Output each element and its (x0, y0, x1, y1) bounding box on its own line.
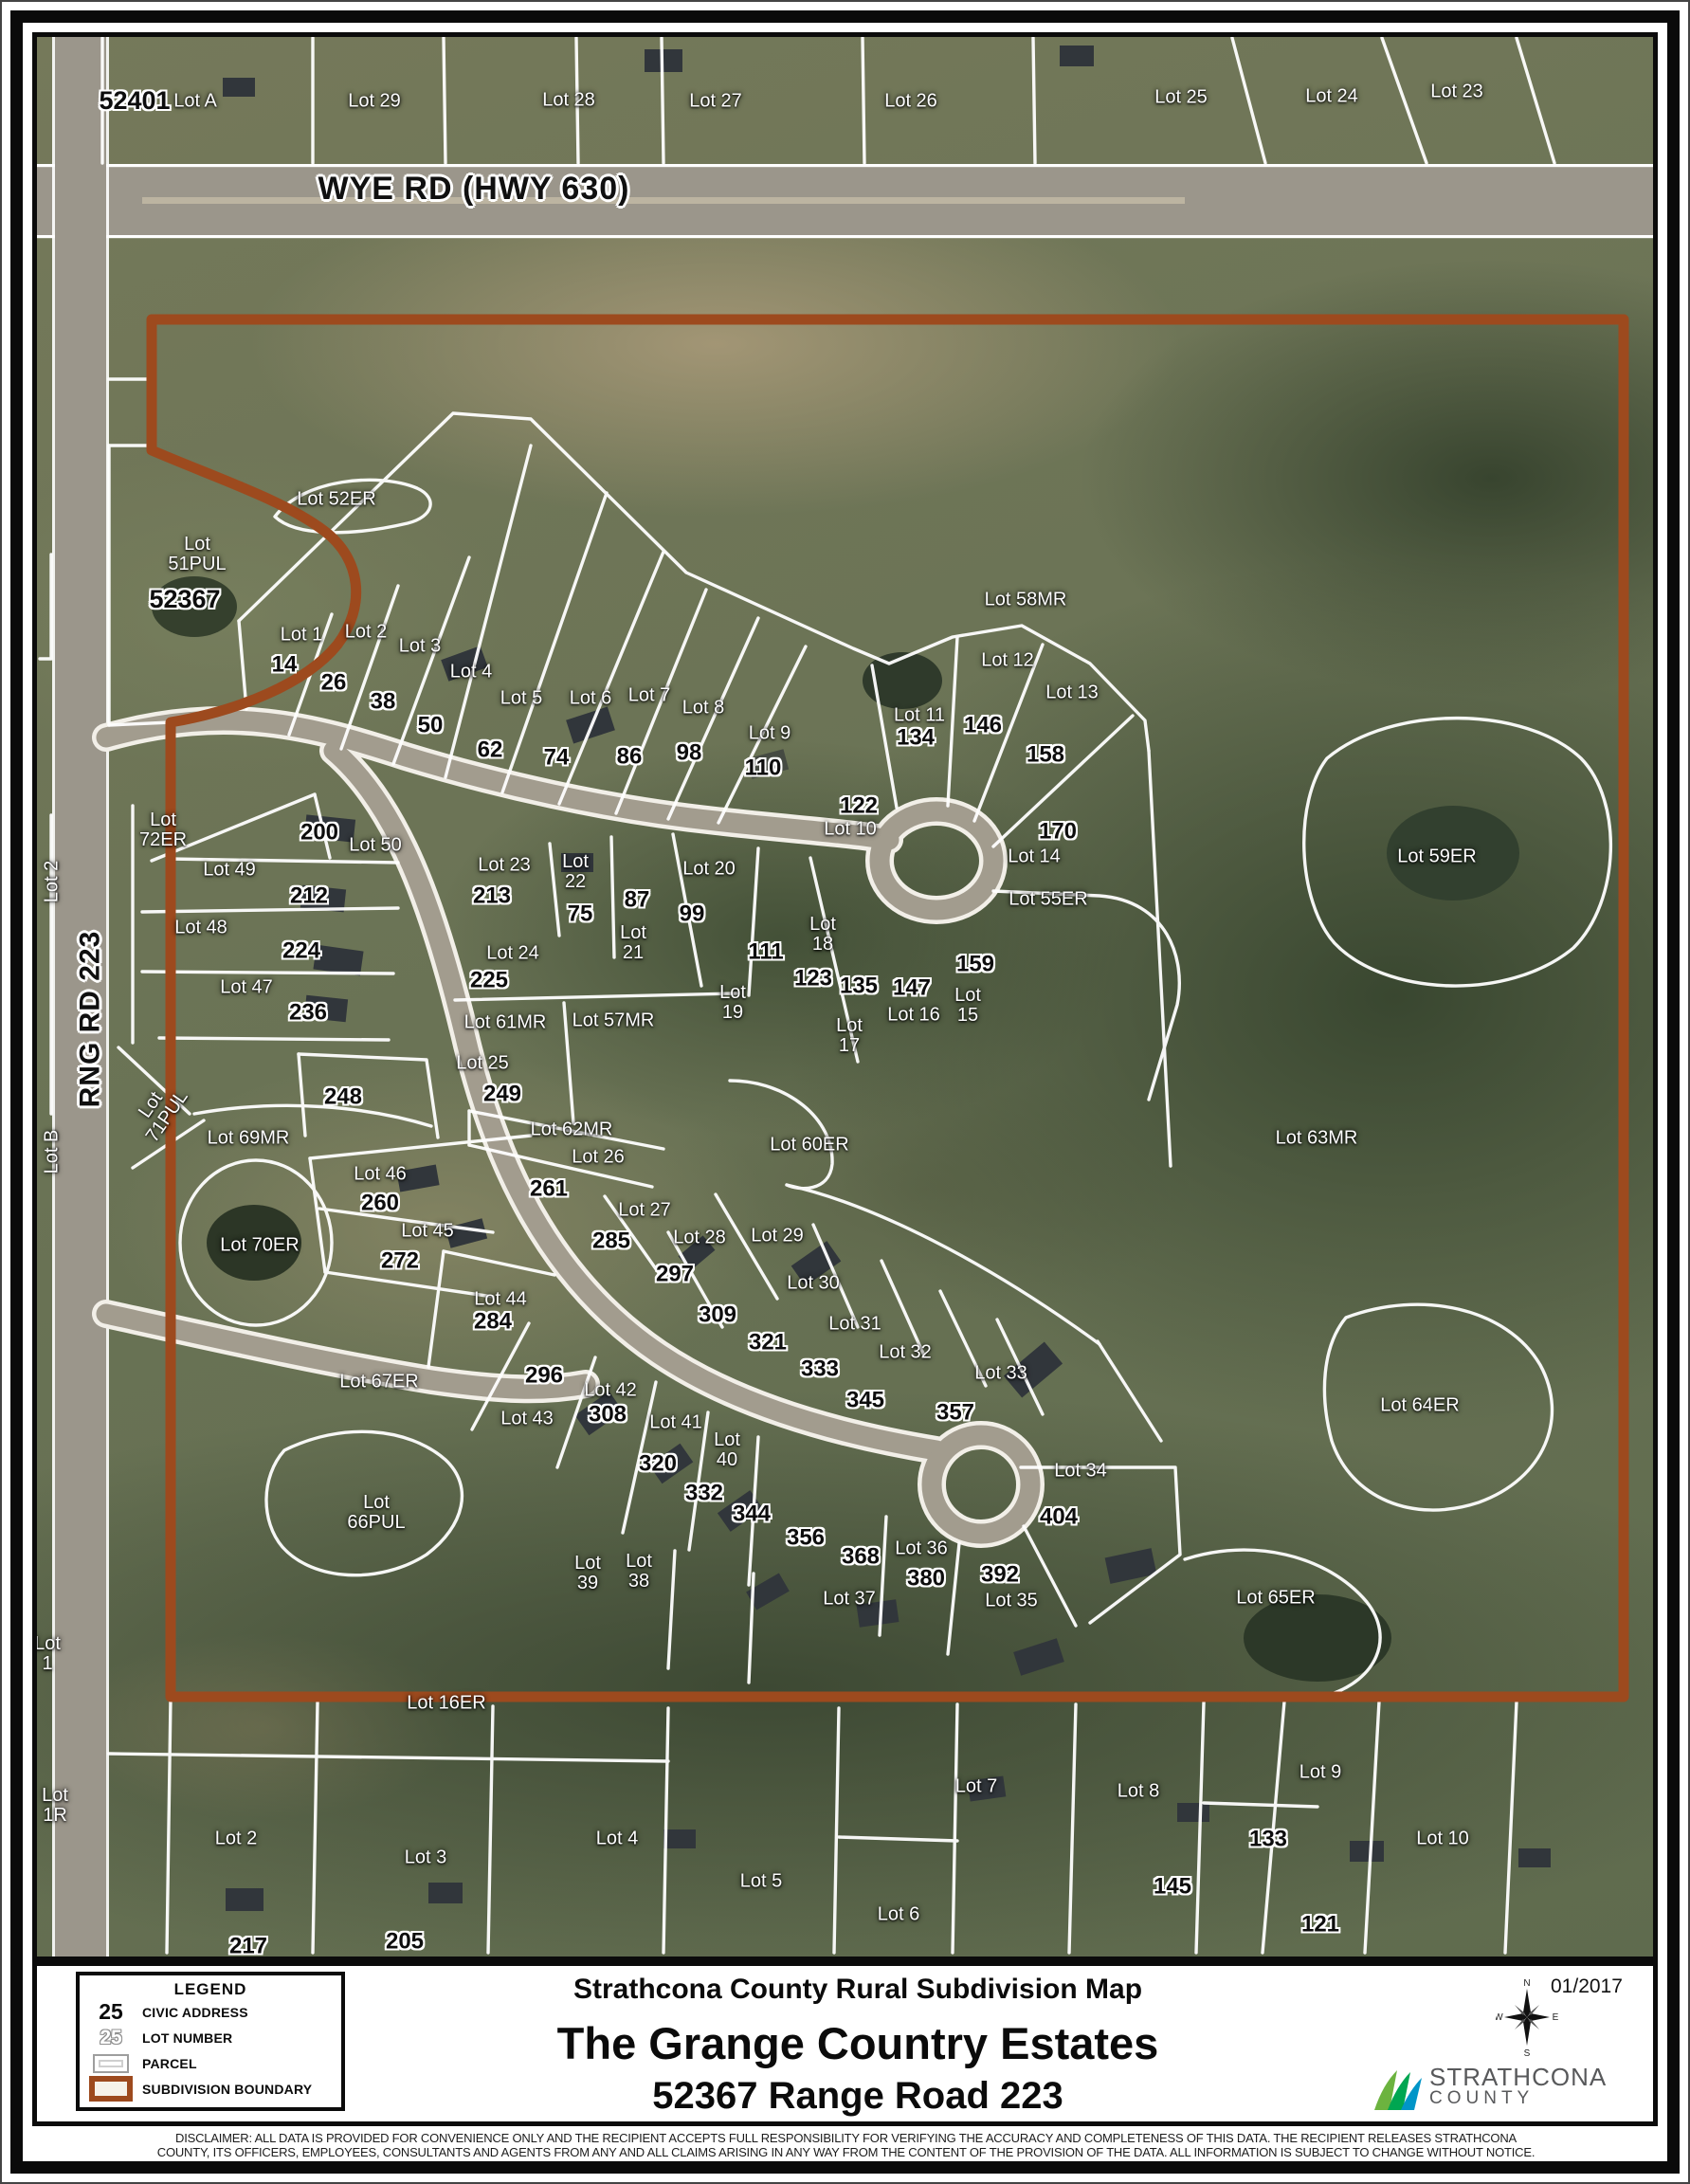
legend-row-civic: 25 CIVIC ADDRESS (80, 1999, 341, 2025)
compass-e: E (1553, 2012, 1558, 2023)
disclaimer-line-2: COUNTY, ITS OFFICERS, EMPLOYEES, CONSULT… (42, 2145, 1650, 2159)
compass-n: N (1523, 1978, 1530, 1989)
legend-label-parcel: PARCEL (142, 2056, 197, 2071)
compass-w: W (1496, 2012, 1503, 2023)
legend: LEGEND 25 CIVIC ADDRESS 25 LOT NUMBER PA… (76, 1972, 345, 2111)
map-date: 01/2017 (1551, 1975, 1623, 1998)
compass-s: S (1524, 2048, 1531, 2057)
legend-label-civic: CIVIC ADDRESS (142, 2005, 248, 2020)
compass-rose-icon: N S E W (1496, 1977, 1558, 2062)
subdivision-boundary-line (152, 319, 1624, 1697)
legend-label-lotnumber: LOT NUMBER (142, 2030, 232, 2046)
map-address: 52367 Range Road 223 (370, 2075, 1346, 2118)
page-title: The Grange Country Estates (370, 2017, 1346, 2069)
map-subtitle: Strathcona County Rural Subdivision Map (370, 1974, 1346, 2006)
logo-subname: COUNTY (1429, 2089, 1607, 2108)
aerial-map (37, 37, 1653, 1956)
title-block: Strathcona County Rural Subdivision Map … (370, 1974, 1346, 2118)
subdivision-boundary-symbol (89, 2076, 133, 2102)
legend-row-parcel: PARCEL (80, 2050, 341, 2076)
legend-row-lotnumber: 25 LOT NUMBER (80, 2025, 341, 2050)
parcel-symbol (93, 2054, 129, 2073)
logo-swoosh-icon (1372, 2065, 1422, 2112)
subdivision-roads (106, 720, 1030, 1534)
legend-label-boundary: SUBDIVISION BOUNDARY (142, 2082, 312, 2097)
disclaimer-line-1: DISCLAIMER: ALL DATA IS PROVIDED FOR CON… (42, 2131, 1650, 2145)
map-canvas (37, 37, 1653, 1956)
civic-address-symbol: 25 (99, 1999, 123, 2025)
disclaimer: DISCLAIMER: ALL DATA IS PROVIDED FOR CON… (42, 2131, 1650, 2159)
strathcona-county-logo: STRATHCONA COUNTY (1372, 2065, 1607, 2112)
legend-heading: LEGEND (80, 1980, 341, 1999)
subdivision-map-page: Lot ALot 29Lot 28Lot 27Lot 26Lot 25Lot 2… (0, 0, 1690, 2184)
lot-number-symbol: 25 (100, 2027, 121, 2049)
legend-row-boundary: SUBDIVISION BOUNDARY (80, 2076, 341, 2102)
parcel-lines (40, 38, 1610, 1953)
logo-name: STRATHCONA (1429, 2065, 1607, 2089)
major-roads (37, 37, 1653, 1956)
